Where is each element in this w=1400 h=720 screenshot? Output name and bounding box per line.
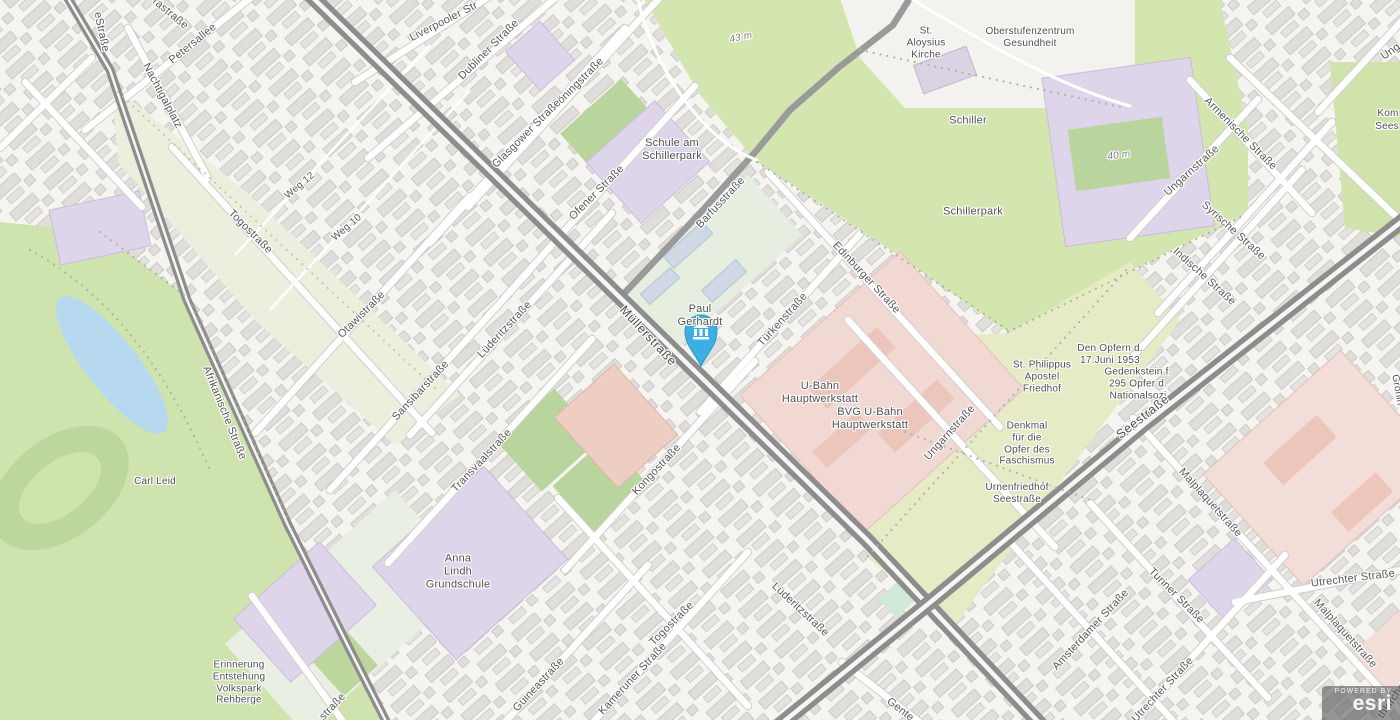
esri-attribution[interactable]: POWERED BY esri [1322,686,1400,720]
esri-logo: esri [1326,695,1392,714]
campus-field-40m [1068,117,1171,192]
map-canvas[interactable]: eStraßerastraßePetersalleeNachtigalplatz… [0,0,1400,720]
map-render-layer [0,0,1400,720]
